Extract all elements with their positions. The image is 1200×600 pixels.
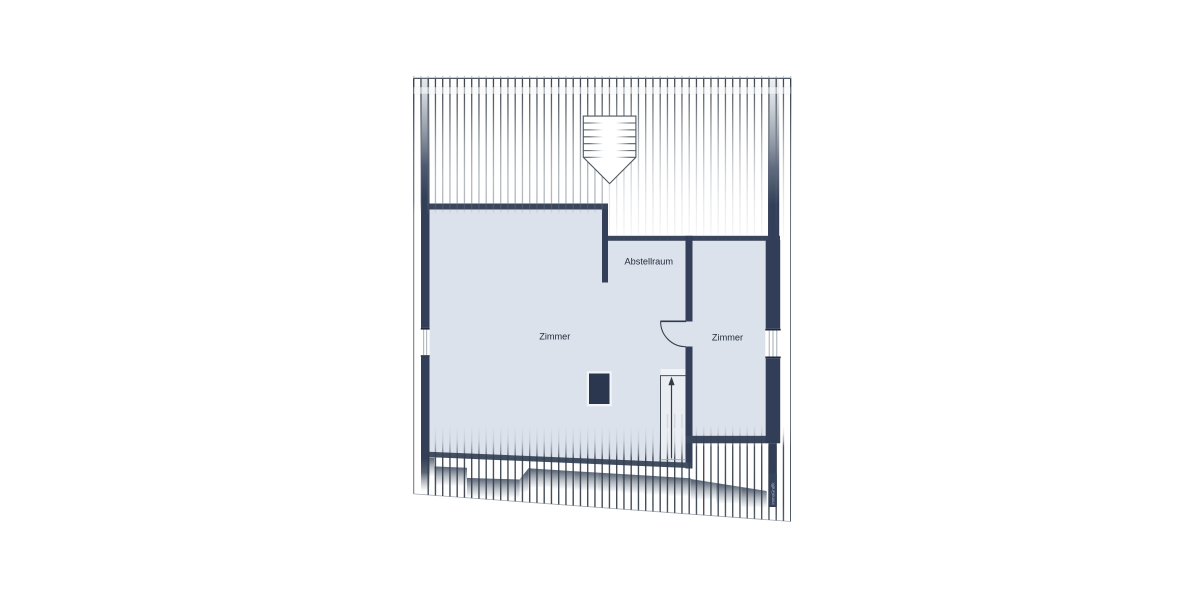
svg-text:Zimmer: Zimmer: [539, 332, 570, 342]
svg-text:immoGrafik: immoGrafik: [771, 482, 776, 505]
svg-text:Abstellraum: Abstellraum: [625, 256, 674, 266]
svg-text:Zimmer: Zimmer: [712, 333, 743, 343]
